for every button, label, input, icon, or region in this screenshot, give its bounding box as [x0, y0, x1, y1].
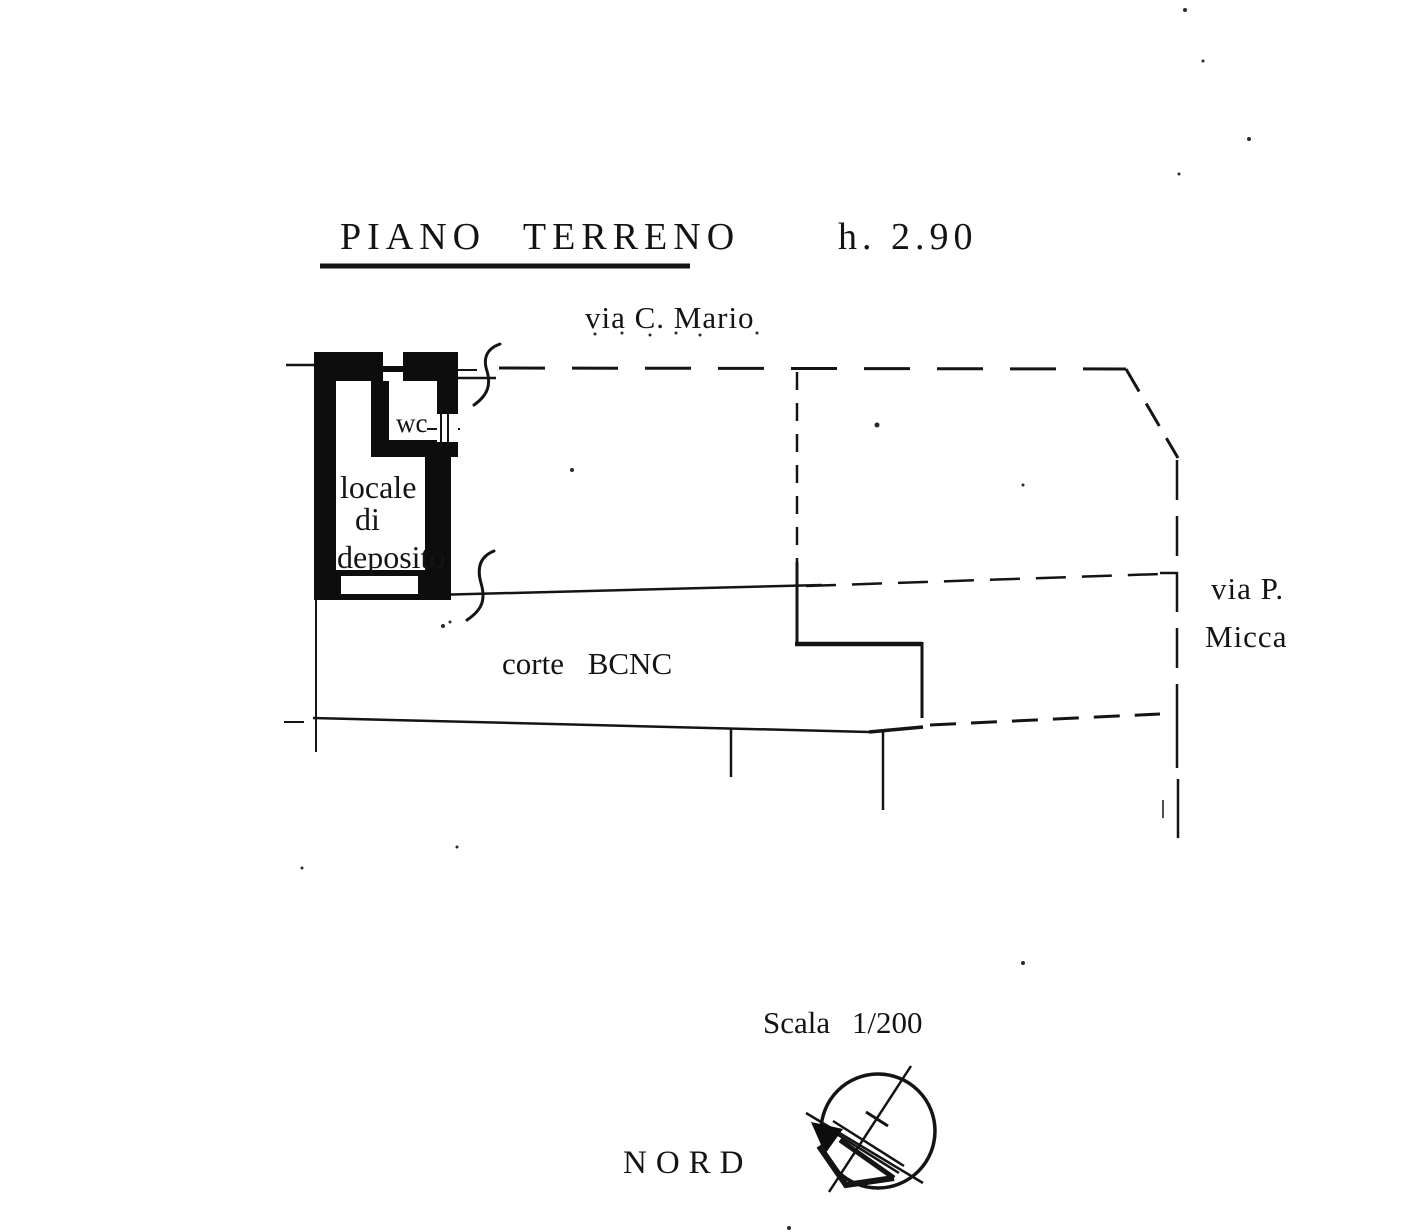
height-annotation: h. 2.90 [838, 218, 978, 256]
room-label-wc: wc [396, 410, 427, 437]
plan-title: PIANO TERRENO [340, 218, 740, 256]
courtyard-label: corte BCNC [502, 648, 672, 679]
wall-wc-partition [371, 378, 389, 446]
floor-plan-drawing [0, 0, 1414, 1232]
street-label-via-p: via P. [1211, 573, 1284, 604]
street-label-micca: Micca [1205, 621, 1287, 652]
boundary-line-via-p-micca [1163, 460, 1178, 838]
parcel-division-lines [795, 372, 922, 718]
courtyard-outline [284, 573, 1178, 810]
room-label-di: di [355, 503, 380, 535]
boundary-line-via-c-mario [499, 368, 1126, 369]
break-line-icon [467, 551, 494, 620]
room-label-locale: locale [340, 471, 416, 503]
scan-noise [301, 8, 1252, 1230]
north-compass-icon [806, 1066, 935, 1192]
room-label-deposito: deposito [337, 541, 445, 573]
scale-label: Scala 1/200 [763, 1007, 923, 1038]
wall-east-upper [437, 352, 458, 414]
street-label-via-c-mario: via C. Mario [585, 302, 755, 333]
south-opening [341, 576, 418, 594]
north-label: NORD [623, 1147, 753, 1180]
wall-west [314, 352, 336, 600]
break-line-icon [474, 344, 500, 405]
floor-plan-page: PIANO TERRENO h. 2.90 via C. Mario wc lo… [0, 0, 1414, 1232]
